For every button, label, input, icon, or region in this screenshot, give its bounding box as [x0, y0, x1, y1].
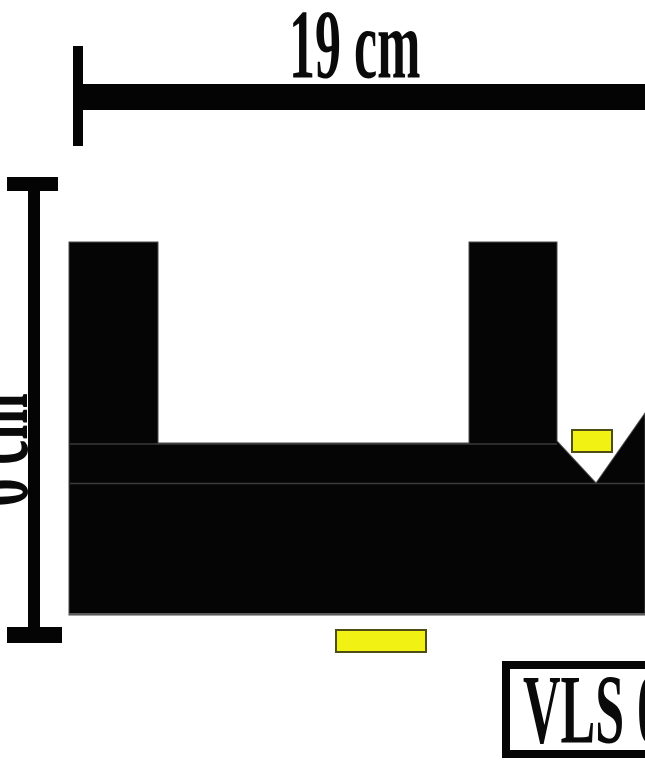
profile-diagram: { "diagram": { "dimensions": { "width_la…	[0, 0, 645, 774]
height-dimension-label: 6 cm	[0, 365, 29, 535]
width-dimension-label: 19 cm	[289, 13, 420, 81]
product-code-label: VLS 0	[523, 678, 645, 746]
highlight-marker-bottom	[335, 629, 427, 653]
height-dimension-endcap-bottom	[7, 627, 62, 643]
profile-cross-section	[69, 242, 645, 615]
highlight-marker-notch	[571, 429, 613, 453]
product-code-box: VLS 0	[502, 661, 645, 758]
